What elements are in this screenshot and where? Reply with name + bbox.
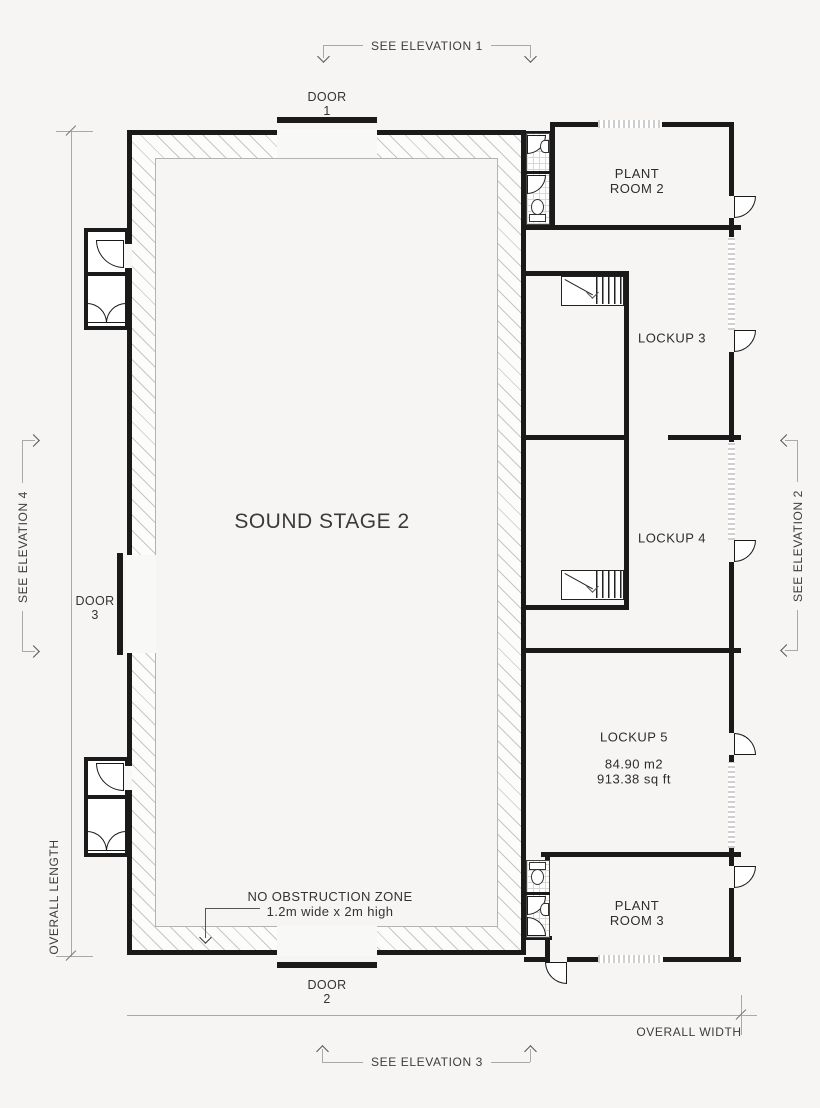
vestibule-top-divider <box>84 272 129 276</box>
wall-plant-room-2-left <box>550 131 555 228</box>
elevation-4-label: SEE ELEVATION 4 <box>14 483 32 611</box>
door3-leaf <box>117 553 123 655</box>
wc-top-toilet-tank <box>529 214 546 222</box>
vestibule-bottom-wall-gap <box>124 766 132 790</box>
wall-bottom-a <box>524 957 545 962</box>
lockup-3-stair-treads <box>596 277 625 304</box>
elevation-3-arrow-left-icon <box>316 1045 329 1058</box>
floor-plan: SOUND STAGE 2 PLANT ROOM 2 LOCKUP 3 LOCK… <box>0 0 820 1108</box>
overall-length-label: OVERALL LENGTH <box>45 831 63 962</box>
elevation-3-arrow-right-icon <box>524 1045 537 1058</box>
wall-right-6 <box>729 848 734 866</box>
no-obstruction-note: NO OBSTRUCTION ZONE 1.2m wide x 2m high <box>247 889 412 919</box>
wall-lockup5-bottom <box>541 852 741 857</box>
wall-lockup3-4-division-b <box>668 435 741 440</box>
lockup-5-door-swing <box>734 733 756 755</box>
door-3-word: DOOR <box>75 594 114 608</box>
wall-right-5 <box>729 755 734 762</box>
lockup-5-area-m2: 84.90 m2 <box>605 757 663 772</box>
wc-bottom-sink <box>540 903 549 916</box>
elevation-1-label: SEE ELEVATION 1 <box>363 37 491 55</box>
vestibule-bottom-divider <box>84 795 129 799</box>
lockup-3-door-swing <box>734 330 756 352</box>
wall-lockup3-4-division-a <box>524 435 629 440</box>
wall-right-7 <box>729 888 734 962</box>
wc-top-toilet-bowl <box>531 199 544 215</box>
elevation-4-arrow-top-icon <box>27 434 40 447</box>
door-1-label: DOOR 1 <box>307 90 346 118</box>
wc-top-divider <box>526 171 550 174</box>
wall-top-b <box>662 122 734 127</box>
wc-bottom-toilet-bowl <box>531 869 544 885</box>
plant-room-2-door-swing <box>734 196 756 218</box>
louvre-bottom <box>598 955 663 963</box>
plant-room-3-label: PLANT ROOM 3 <box>610 898 664 928</box>
plant-room-2-label: PLANT ROOM 2 <box>610 166 664 196</box>
door-2-label: DOOR 2 <box>307 978 346 1006</box>
elevation-3-label: SEE ELEVATION 3 <box>363 1053 491 1071</box>
plant-room-3-label-line1: PLANT <box>610 898 664 913</box>
elevation-2-label: SEE ELEVATION 2 <box>789 482 807 610</box>
wall-right-3 <box>729 352 734 442</box>
wall-top-a <box>550 122 598 127</box>
door-2-word: DOOR <box>307 978 346 992</box>
wall-stair-room-right <box>624 271 629 610</box>
no-obstruction-line1: NO OBSTRUCTION ZONE <box>247 889 412 904</box>
plant-room-3-label-line2: ROOM 3 <box>610 913 664 928</box>
louvre-right-2 <box>728 442 735 540</box>
wall-stair-room-bottom <box>524 605 629 610</box>
no-obstruction-leader-h <box>205 908 260 909</box>
exit-door-swing-bottom <box>545 962 567 984</box>
overall-length-ext-top <box>56 131 93 132</box>
door1-opening <box>277 129 377 158</box>
lockup-4-stair-treads <box>596 571 625 598</box>
elevation-2-arrow-bottom-icon <box>780 644 793 657</box>
wall-bottom-b <box>567 957 598 962</box>
wc-bottom-divider <box>526 892 550 895</box>
door2-leaf <box>277 962 377 968</box>
door-3-label: DOOR 3 <box>75 594 114 622</box>
lockup-3-label: LOCKUP 3 <box>638 331 706 346</box>
door2-opening <box>277 926 377 956</box>
louvre-right-3 <box>728 762 735 848</box>
wall-right-1 <box>729 122 734 196</box>
door3-opening <box>126 555 156 653</box>
wall-plant-room-2-bottom <box>524 225 741 230</box>
lockup-4-door-swing <box>734 540 756 562</box>
plant-room-3-door-swing <box>734 866 756 888</box>
wc-top-sink <box>540 140 549 153</box>
door-3-number: 3 <box>75 608 114 622</box>
elevation-2-arrow-top-icon <box>780 434 793 447</box>
louvre-right-1 <box>728 237 735 330</box>
vestibule-top-wall-gap <box>124 244 132 268</box>
wall-lockup5-top <box>521 648 741 653</box>
lockup-4-label: LOCKUP 4 <box>638 531 706 546</box>
elevation-4-arrow-bottom-icon <box>27 645 40 658</box>
sound-stage-floor <box>155 158 498 927</box>
lockup-5-area-sqft: 913.38 sq ft <box>597 772 671 787</box>
lockup-5-label: LOCKUP 5 <box>600 730 668 745</box>
overall-width-label: OVERALL WIDTH <box>628 1023 749 1041</box>
no-obstruction-line2: 1.2m wide x 2m high <box>247 904 412 919</box>
plant-room-2-label-line1: PLANT <box>610 166 664 181</box>
door-1-number: 1 <box>307 104 346 118</box>
overall-width-line <box>127 1015 757 1016</box>
door-1-word: DOOR <box>307 90 346 104</box>
sound-stage-label: SOUND STAGE 2 <box>234 510 409 534</box>
plant-room-2-label-line2: ROOM 2 <box>610 181 664 196</box>
elevation-1-arrow-right-icon <box>524 50 537 63</box>
louvre-top <box>598 120 662 128</box>
overall-length-line <box>71 131 72 956</box>
door-2-number: 2 <box>307 992 346 1006</box>
elevation-1-arrow-left-icon <box>317 50 330 63</box>
